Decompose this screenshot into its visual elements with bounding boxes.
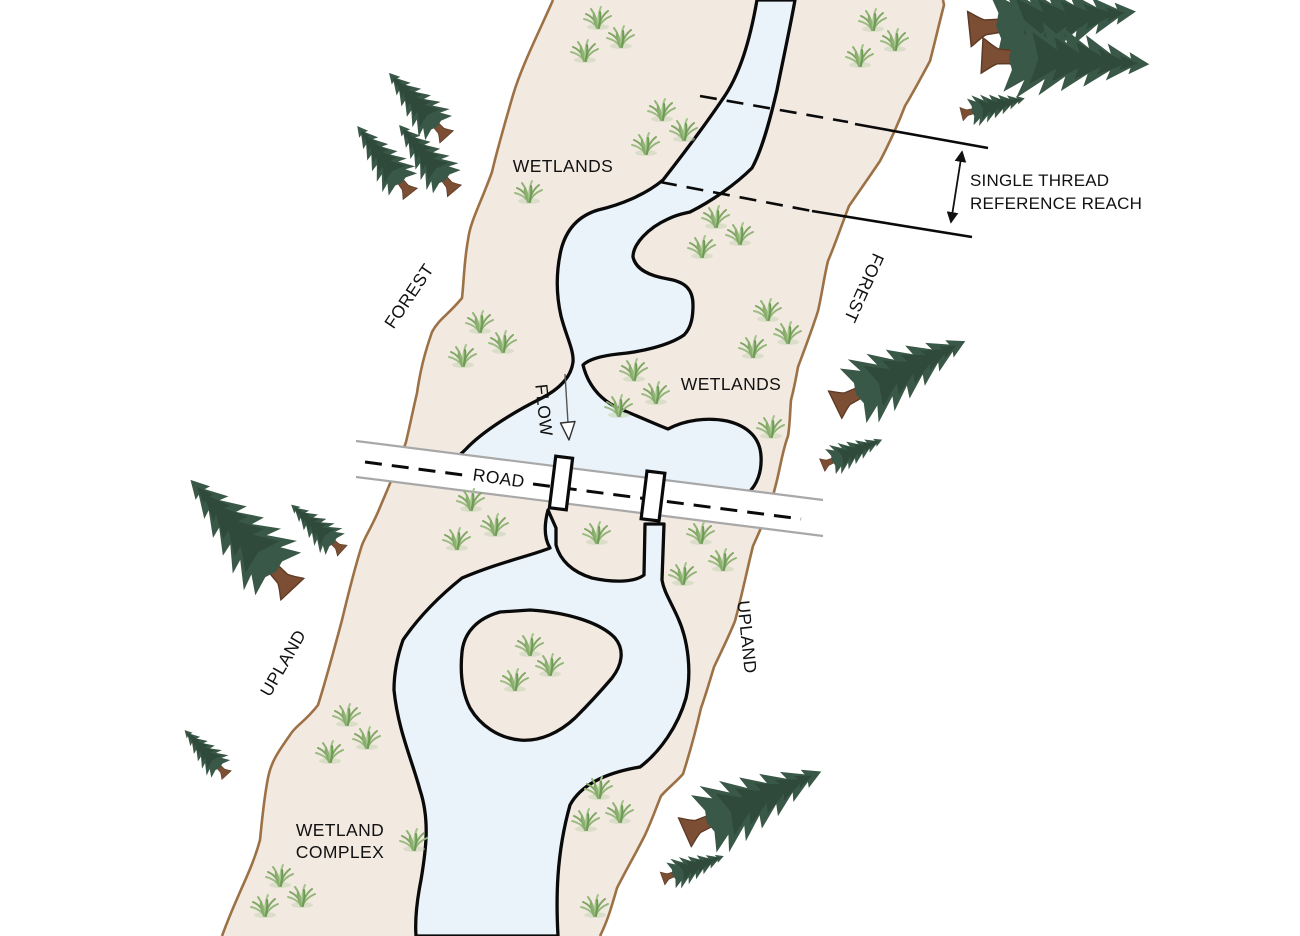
site-plan: WETLANDS FOREST FOREST WETLANDS FLOW ROA… <box>0 0 1300 936</box>
conifer-tree <box>341 113 427 206</box>
conifer-tree <box>670 738 836 865</box>
conifer-tree <box>174 720 238 785</box>
conifer-tree <box>373 59 462 151</box>
conifer-tree <box>164 455 319 614</box>
culvert-2 <box>641 471 665 521</box>
svg-text:SINGLE THREAD: SINGLE THREAD <box>970 171 1109 190</box>
label-wetlands-mid: WETLANDS <box>681 374 781 394</box>
conifer-tree <box>820 310 981 437</box>
svg-text:COMPLEX: COMPLEX <box>296 842 384 862</box>
conifer-tree <box>816 425 888 480</box>
svg-text:REFERENCE REACH: REFERENCE REACH <box>970 194 1142 213</box>
label-forest-left: FOREST <box>380 260 438 332</box>
label-upland-left: UPLAND <box>256 626 310 700</box>
label-upland-right: UPLAND <box>733 599 761 674</box>
conifer-tree <box>958 83 1029 130</box>
site-plan-canvas: WETLANDS FOREST FOREST WETLANDS FLOW ROA… <box>0 0 1300 936</box>
label-forest-right: FOREST <box>840 250 888 325</box>
label-wetlands-upper: WETLANDS <box>513 156 613 176</box>
label-reference-reach: SINGLE THREAD REFERENCE REACH <box>970 171 1142 213</box>
svg-text:WETLAND: WETLAND <box>296 820 384 840</box>
reach-dimension-line <box>951 152 962 222</box>
